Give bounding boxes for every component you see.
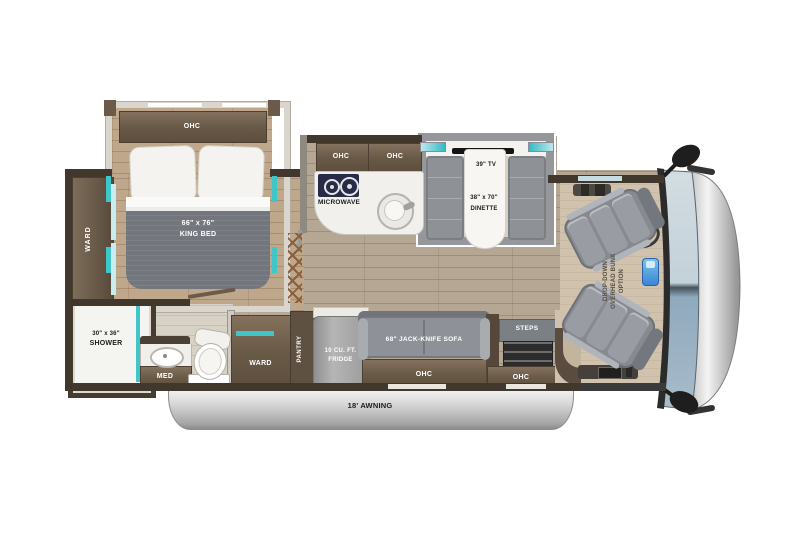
slide-post-right bbox=[268, 100, 280, 116]
med-label: MED bbox=[140, 372, 190, 381]
wall-left bbox=[65, 169, 72, 391]
pantry-label: PANTRY bbox=[296, 319, 308, 379]
wall-bottom-cab bbox=[579, 383, 666, 391]
bathroom-sink bbox=[150, 347, 184, 368]
slide-window-3 bbox=[272, 176, 277, 202]
bed-pillow-right bbox=[197, 145, 265, 203]
slide-window-2 bbox=[106, 247, 111, 273]
bunk-option-line1: DROP-DOWN bbox=[602, 239, 610, 323]
kitchen-ohc-right-label: OHC bbox=[370, 152, 420, 161]
ward-left-mirror-1 bbox=[111, 184, 116, 240]
dinette-size: 38" x 70" bbox=[454, 194, 514, 202]
king-bed-size: 66" x 76" bbox=[126, 219, 270, 228]
shower-name: SHOWER bbox=[70, 339, 142, 348]
ward-bottom-cabinet bbox=[231, 315, 292, 390]
dinette-name: DINETTE bbox=[454, 205, 514, 213]
slide-highlight-1 bbox=[148, 103, 202, 107]
tv-label: 39" TV bbox=[450, 161, 522, 169]
wall-kitchen-left bbox=[300, 135, 307, 233]
bunk-option-line2: OVERHEAD BUNK bbox=[610, 239, 618, 323]
slide-post-left bbox=[104, 100, 116, 116]
awning-label: 18' AWNING bbox=[300, 401, 440, 410]
bunk-option-line3: OPTION bbox=[618, 239, 626, 323]
kitchen-ohc-left-label: OHC bbox=[318, 152, 364, 161]
wall-top-left bbox=[65, 169, 112, 177]
fridge-line1: 10 CU. FT. bbox=[313, 347, 368, 355]
sofa-ohc-label: OHC bbox=[362, 370, 486, 379]
entry-ohc-label: OHC bbox=[487, 373, 555, 382]
slide-window-1 bbox=[106, 176, 111, 202]
king-bed-name: KING BED bbox=[126, 230, 270, 239]
bed-ohc-label: OHC bbox=[119, 122, 265, 131]
bed-pillow-left bbox=[129, 145, 197, 203]
burner-large-icon bbox=[340, 177, 359, 196]
fridge-line2: FRIDGE bbox=[313, 356, 368, 364]
window-bottom-1 bbox=[388, 384, 446, 389]
rv-floorplan: 18' AWNING bbox=[0, 0, 800, 545]
dinette-window-left bbox=[420, 142, 446, 152]
bathroom-sink-drain bbox=[163, 354, 167, 358]
wall-bath-top bbox=[68, 299, 190, 306]
ward-bottom-label: WARD bbox=[231, 359, 290, 368]
window-top-right bbox=[578, 176, 622, 181]
burner-small-icon bbox=[324, 179, 340, 195]
wall-kitchen-top bbox=[300, 135, 422, 143]
shower-size: 30" x 36" bbox=[70, 330, 142, 338]
ward-bottom-accent bbox=[236, 331, 274, 336]
front-cap-body bbox=[657, 168, 740, 412]
ward-left-label: WARD bbox=[84, 209, 98, 269]
bunk-option-note: DROP-DOWN OVERHEAD BUNK OPTION bbox=[602, 239, 642, 323]
cab-console bbox=[642, 258, 659, 286]
toilet bbox=[186, 325, 236, 384]
ward-left-mirror-2 bbox=[111, 243, 116, 295]
kitchen-ohc-divider bbox=[368, 143, 369, 171]
microwave-label: MICROWAVE bbox=[310, 199, 368, 207]
bunk-ladder bbox=[288, 233, 302, 303]
wall-bottom bbox=[65, 383, 579, 391]
kitchen-sink-bowl bbox=[384, 200, 405, 221]
steps-label: STEPS bbox=[499, 325, 555, 333]
cab-console-cap bbox=[646, 261, 655, 268]
dinette-window-right bbox=[528, 142, 554, 152]
window-bottom-2 bbox=[506, 384, 546, 389]
sofa-label: 68" JACK-KNIFE SOFA bbox=[366, 336, 482, 344]
slide-window-4 bbox=[272, 247, 277, 273]
slide-highlight-2 bbox=[222, 103, 266, 107]
